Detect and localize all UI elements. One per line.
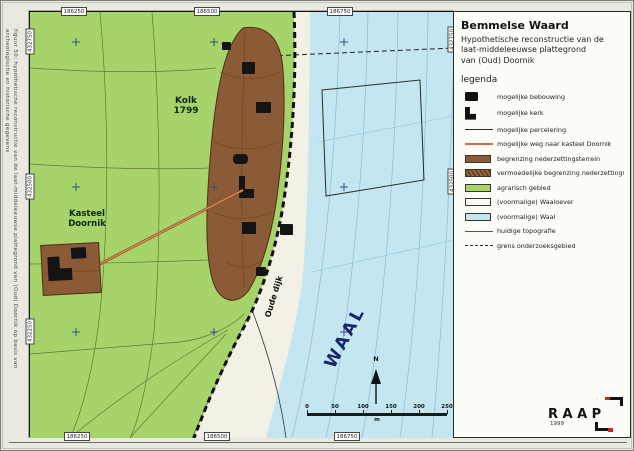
page-bottom-rule bbox=[9, 442, 627, 443]
figure-caption-line2: archeologische en historische gegevens bbox=[4, 29, 10, 153]
coord-bottom-2: 186500 bbox=[204, 432, 230, 441]
coord-left-2: 432500 bbox=[26, 174, 35, 200]
coord-left-3: 432250 bbox=[26, 319, 35, 345]
legend-item-label: agrarisch gebied bbox=[497, 184, 551, 192]
label-kasteel-doornik: Kasteel Doornik bbox=[58, 210, 116, 230]
legend-item-label: (voormalige) Waaloever bbox=[497, 198, 574, 206]
legend-list: mogelijke bebouwing mogelijke kerk mogel… bbox=[461, 92, 624, 250]
legend-item: mogelijke bebouwing bbox=[461, 92, 624, 101]
logo-bracket-top-icon bbox=[606, 397, 623, 406]
map-subtitle: Hypothetische reconstructie van de laat-… bbox=[461, 35, 624, 66]
legend-item: mogelijke percelering bbox=[461, 125, 624, 134]
coord-left-1: 432750 bbox=[26, 29, 35, 55]
settlement-probable-swatch bbox=[465, 169, 491, 177]
coord-bottom-1: 186250 bbox=[64, 432, 90, 441]
legend-item: grens onderzoeksgebied bbox=[461, 241, 624, 250]
legend-item: (voormalige) Waaloever bbox=[461, 198, 624, 207]
legend-item-label: mogelijke weg naar kasteel Doornik bbox=[497, 140, 611, 148]
coord-top-1: 186250 bbox=[61, 7, 87, 16]
legend-item: begrenzing nederzettingsterrein bbox=[461, 154, 624, 163]
logo-bracket-bottom-icon bbox=[595, 422, 612, 431]
raap-logo-text: RAAP bbox=[548, 407, 606, 422]
legend-item: mogelijke weg naar kasteel Doornik bbox=[461, 140, 624, 149]
map-frame: Kolk 1799 Kasteel Doornik Oude dijk WAAL… bbox=[29, 11, 453, 437]
settlement-swatch bbox=[465, 155, 491, 163]
legend-item: agrarisch gebied bbox=[461, 183, 624, 192]
topography-line-icon bbox=[465, 231, 493, 232]
legend-item-label: vermoedelijke begrenzing nederzettingste… bbox=[497, 169, 624, 177]
scale-bar-line bbox=[307, 413, 447, 416]
coord-top-3: 186750 bbox=[327, 7, 353, 16]
label-kolk: Kolk 1799 bbox=[158, 96, 214, 117]
figure-caption-line1: figuur 50: hypothetische reconstructie v… bbox=[12, 29, 18, 369]
legend-item-label: huidige topografie bbox=[497, 227, 556, 235]
church-icon bbox=[465, 107, 476, 120]
legend-item: mogelijke kerk bbox=[461, 107, 624, 120]
parcel-line-icon bbox=[465, 129, 493, 130]
legend-heading: legenda bbox=[461, 75, 624, 85]
scanned-map-page: figuur 50: hypothetische reconstructie v… bbox=[0, 0, 634, 451]
legend-panel: Bemmelse Waard Hypothetische reconstruct… bbox=[453, 11, 631, 438]
river-swatch bbox=[465, 213, 491, 221]
coord-top-2: 186500 bbox=[194, 7, 220, 16]
coord-bottom-3: 186750 bbox=[334, 432, 360, 441]
road-line-icon bbox=[465, 143, 493, 146]
raap-logo: RAAP 1999 bbox=[548, 401, 618, 427]
riverbank-swatch bbox=[465, 198, 491, 206]
raap-logo-year: 1999 bbox=[550, 421, 564, 427]
building-icon bbox=[465, 92, 478, 101]
legend-item-label: begrenzing nederzettingsterrein bbox=[497, 155, 600, 163]
legend-item: huidige topografie bbox=[461, 227, 624, 236]
agrarian-swatch bbox=[465, 184, 491, 192]
north-label: N bbox=[369, 356, 383, 363]
castle-area bbox=[41, 242, 102, 295]
legend-item-label: mogelijke bebouwing bbox=[497, 93, 565, 101]
legend-item: (voormalige) Waal bbox=[461, 212, 624, 221]
legend-item-label: (voormalige) Waal bbox=[497, 213, 555, 221]
boundary-line-icon bbox=[465, 245, 493, 246]
legend-item-label: mogelijke percelering bbox=[497, 126, 566, 134]
scale-bar: 0 50 100 150 200 250 m bbox=[307, 404, 447, 424]
legend-item-label: grens onderzoeksgebied bbox=[497, 242, 576, 250]
legend-item-label: mogelijke kerk bbox=[497, 109, 544, 117]
scale-unit: m bbox=[374, 417, 380, 423]
map-title: Bemmelse Waard bbox=[461, 19, 624, 32]
legend-item: vermoedelijke begrenzing nederzettingste… bbox=[461, 169, 624, 178]
